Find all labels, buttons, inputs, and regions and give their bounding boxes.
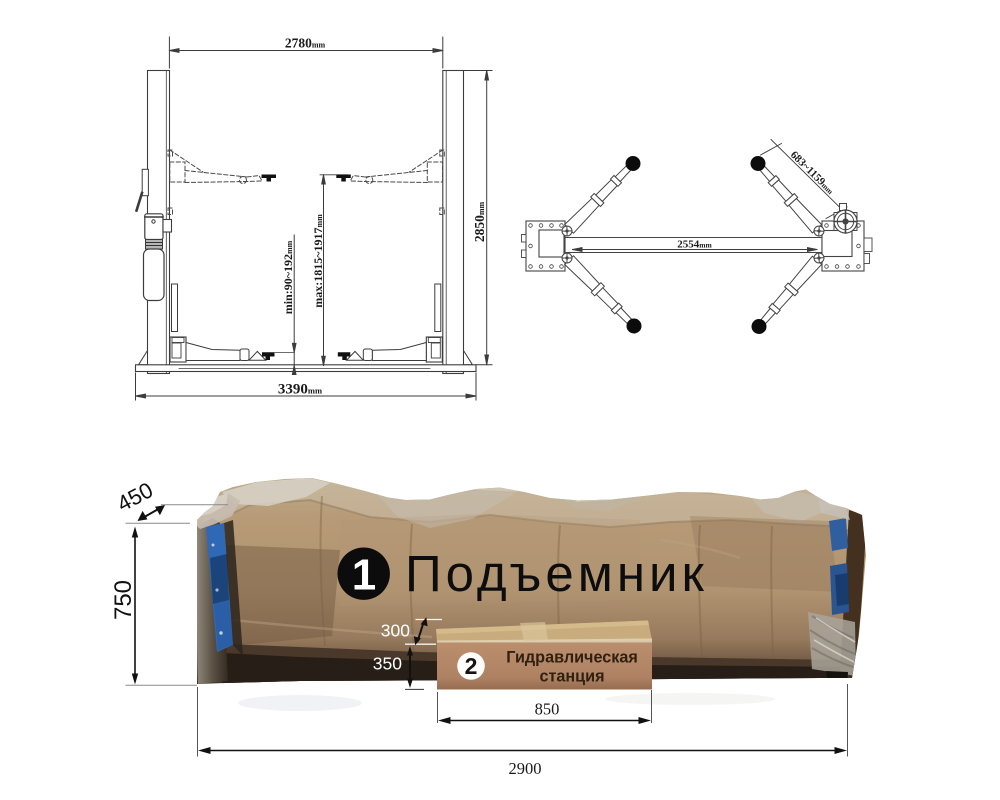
svg-text:300: 300 bbox=[381, 621, 410, 641]
svg-text:max:1815~1917mm: max:1815~1917mm bbox=[311, 214, 325, 308]
svg-text:Подъемник: Подъемник bbox=[405, 545, 708, 602]
svg-text:3390mm: 3390mm bbox=[278, 382, 322, 398]
svg-text:Гидравлическая: Гидравлическая bbox=[506, 649, 638, 667]
svg-text:2900: 2900 bbox=[509, 759, 542, 778]
svg-text:2554mm: 2554mm bbox=[677, 239, 712, 251]
svg-text:2850mm: 2850mm bbox=[472, 202, 487, 243]
svg-text:683~1159mm: 683~1159mm bbox=[788, 149, 837, 197]
svg-text:450: 450 bbox=[113, 477, 157, 516]
svg-text:2780mm: 2780mm bbox=[285, 36, 326, 51]
svg-text:2: 2 bbox=[465, 653, 478, 679]
svg-text:350: 350 bbox=[373, 654, 402, 674]
svg-text:750: 750 bbox=[110, 580, 137, 620]
svg-text:станция: станция bbox=[539, 668, 604, 686]
svg-text:min:90~192mm: min:90~192mm bbox=[281, 240, 295, 314]
svg-text:850: 850 bbox=[535, 700, 560, 719]
svg-text:1: 1 bbox=[352, 551, 376, 600]
